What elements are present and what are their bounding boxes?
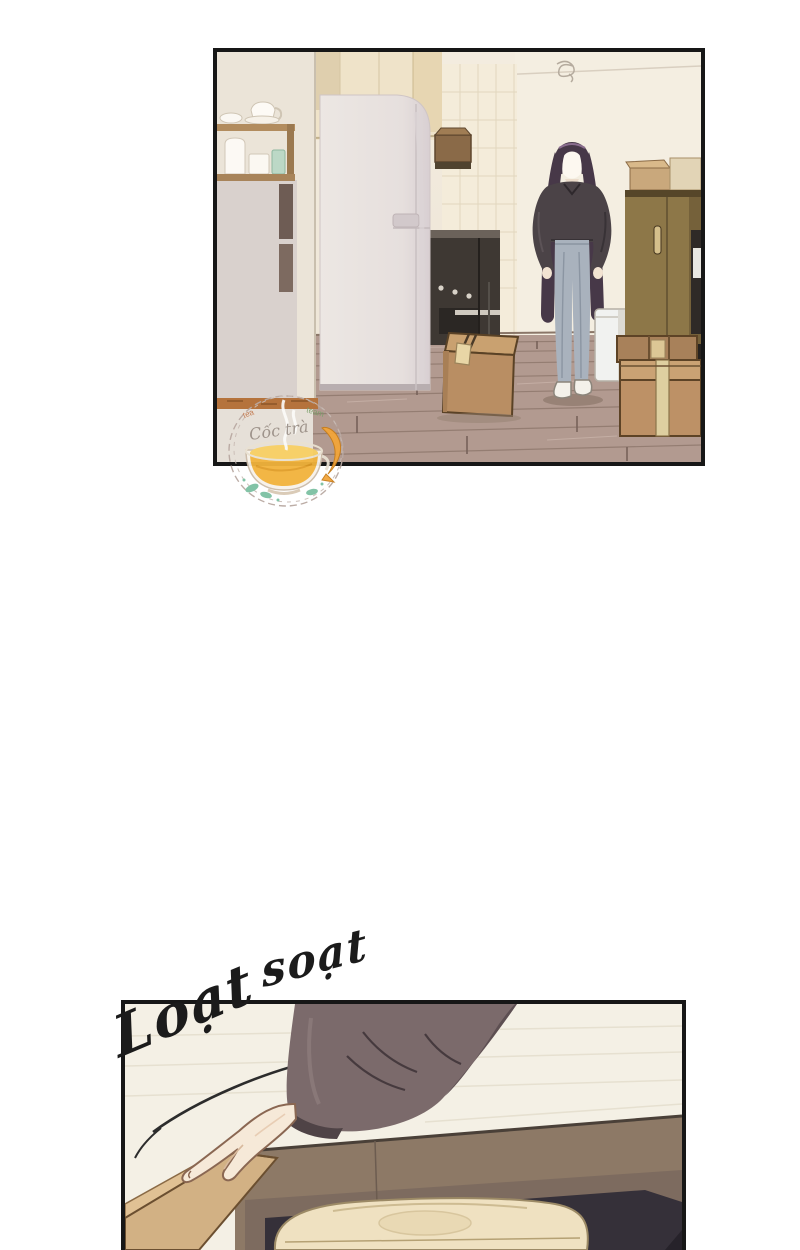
script-text: Cốc trà <box>248 417 310 444</box>
floor-shadow <box>543 394 603 406</box>
closeup-art <box>125 1004 682 1250</box>
panel-hand-box-closeup <box>121 1000 686 1250</box>
refrigerator <box>320 95 430 390</box>
folded-cloth <box>275 1198 588 1250</box>
cardboard-boxes-right <box>617 336 701 436</box>
cardboard-box-center <box>437 333 521 423</box>
arc-text-right: team <box>305 405 325 419</box>
teacup-logo: tea team Cốc trà <box>222 388 354 510</box>
range-hood-box <box>435 128 471 169</box>
comic-page: tea team Cốc trà Loạtsoạt <box>0 0 800 1250</box>
translator-watermark: tea team Cốc trà <box>222 388 354 510</box>
sfx-word-2: soạt <box>260 922 370 995</box>
stove <box>428 230 500 345</box>
arc-text-left: tea <box>242 407 256 419</box>
